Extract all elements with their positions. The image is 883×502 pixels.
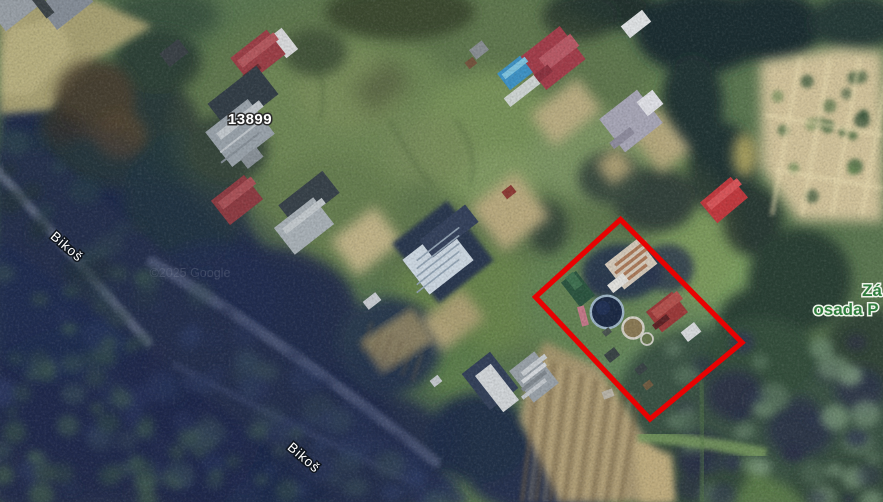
svg-text:13899: 13899 bbox=[228, 111, 272, 128]
svg-text:osada P: osada P bbox=[813, 300, 878, 319]
svg-text:Zá: Zá bbox=[862, 281, 882, 300]
svg-text:©2025 Google: ©2025 Google bbox=[150, 266, 231, 280]
